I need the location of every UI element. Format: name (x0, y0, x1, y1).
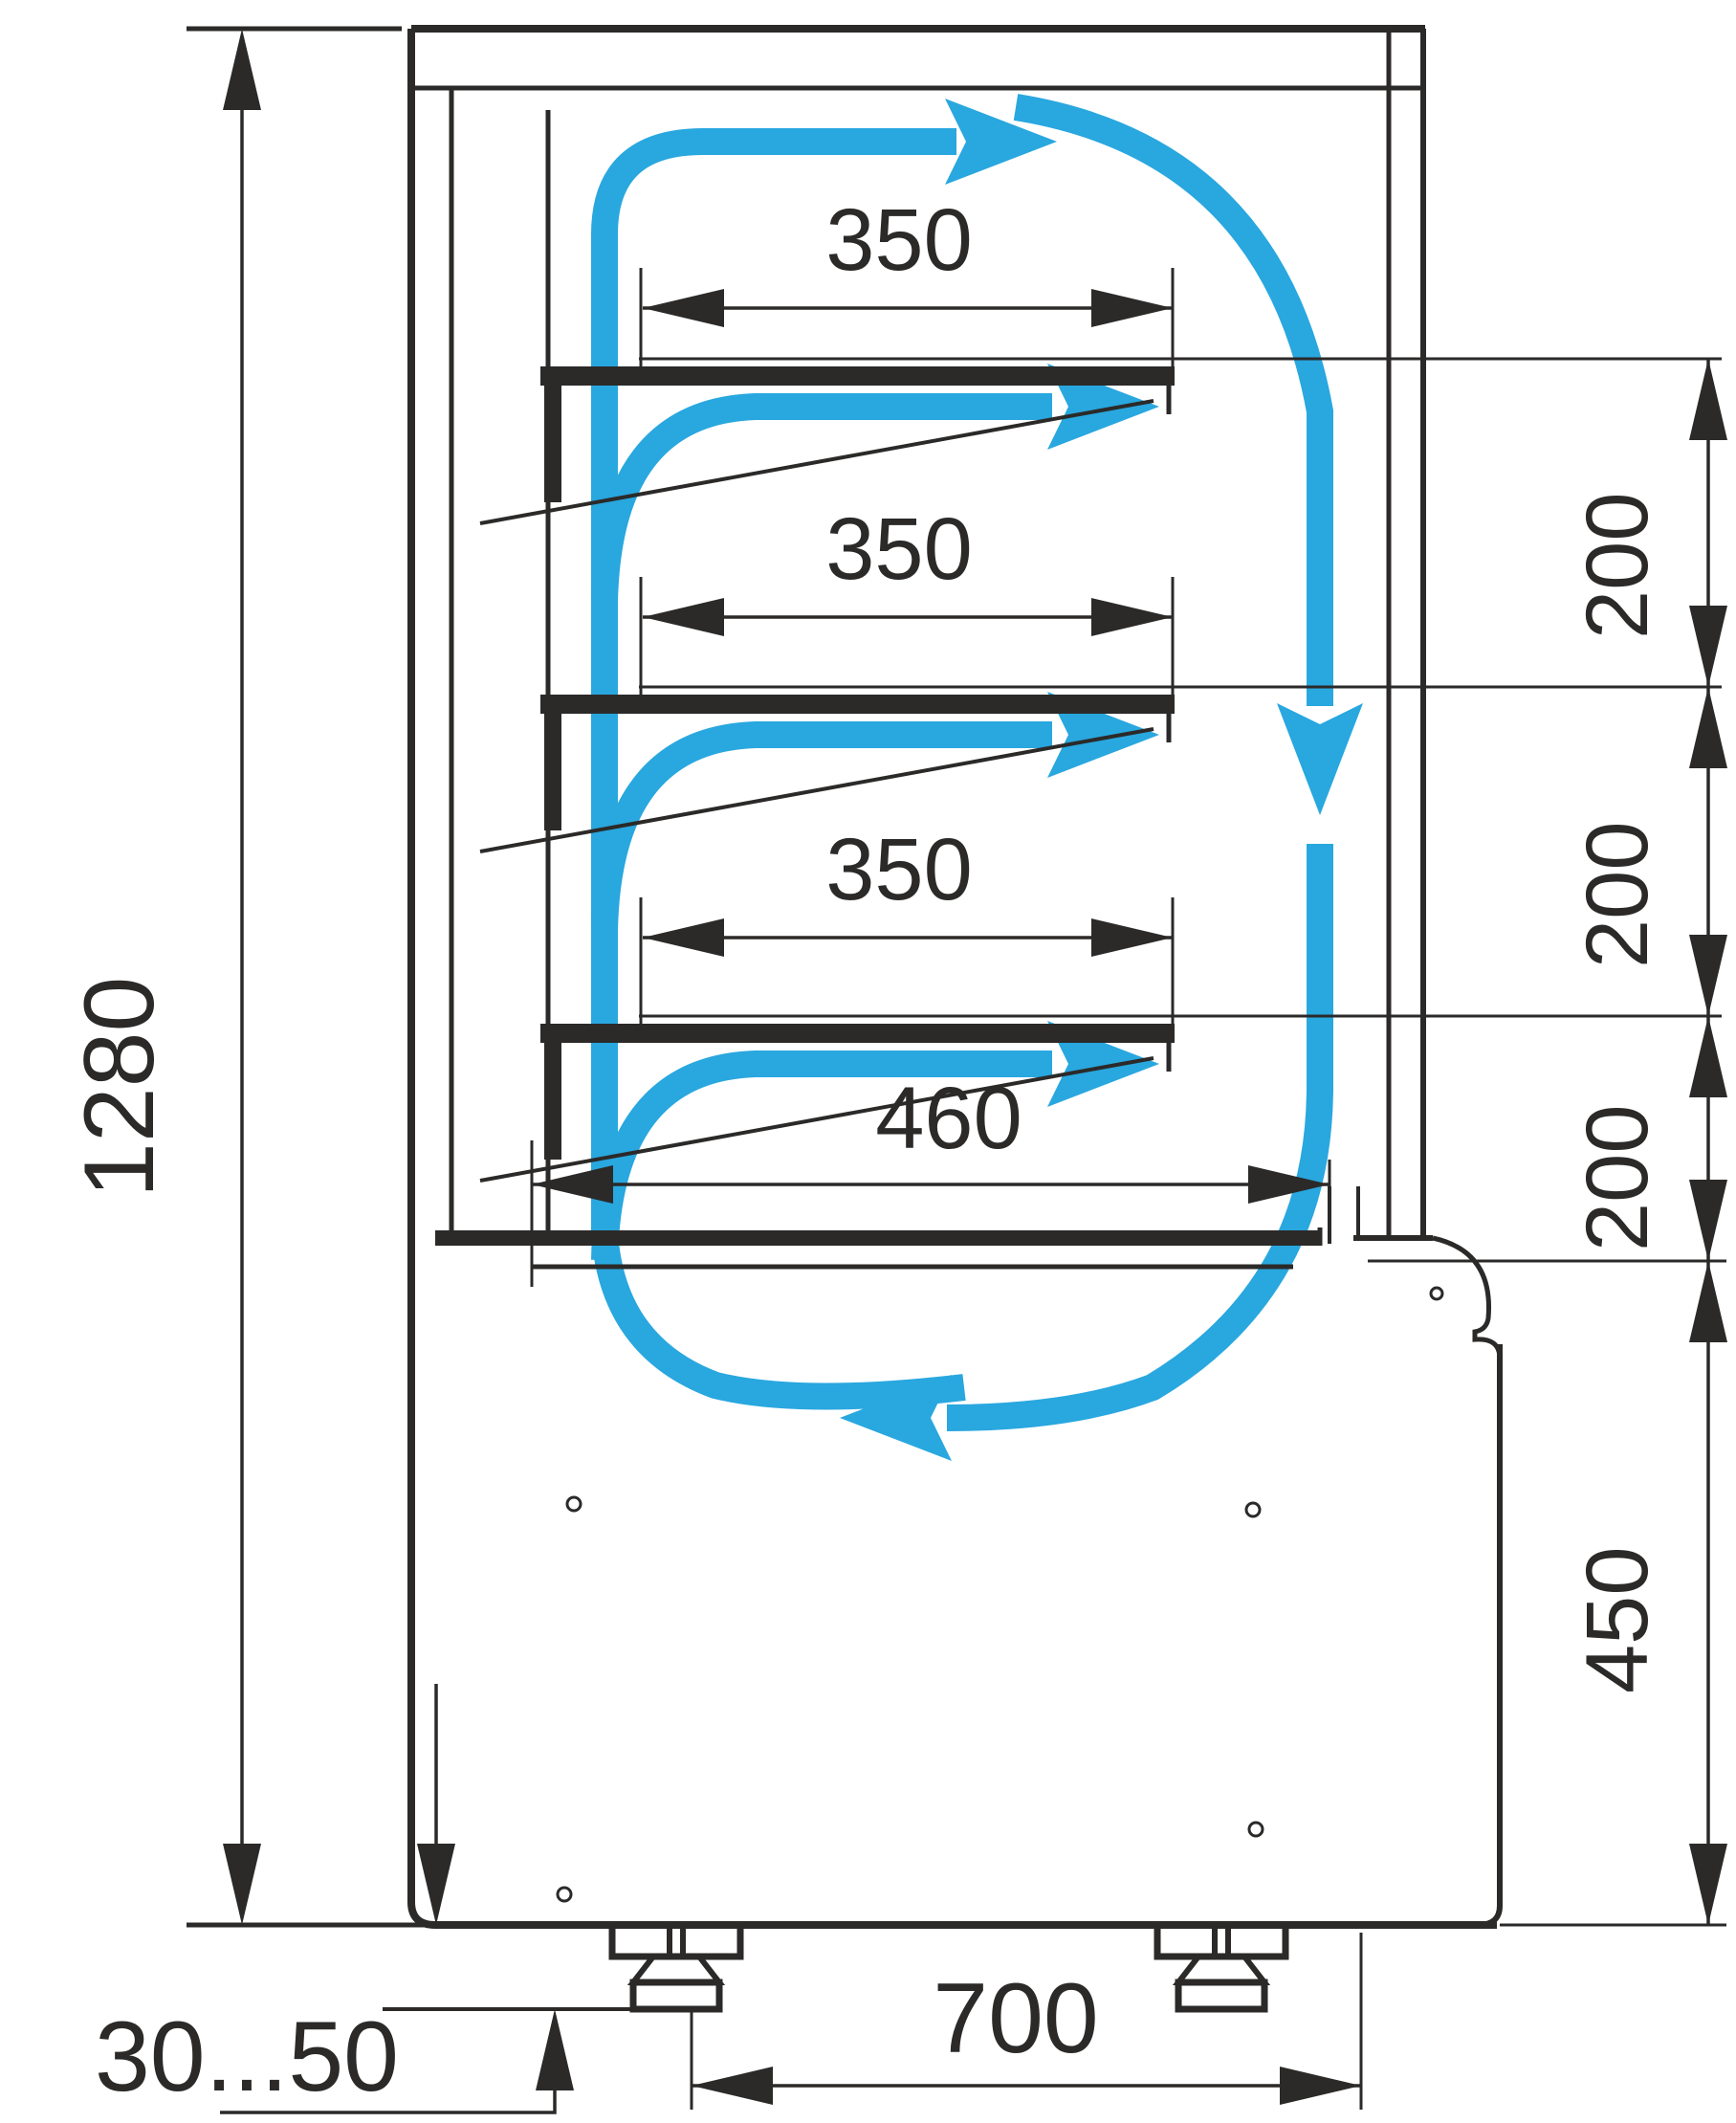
foot-left (612, 1925, 740, 2009)
dim-label: 200 (1569, 1105, 1666, 1252)
dim-label: 1280 (64, 977, 175, 1198)
dim-label: 350 (825, 500, 973, 598)
front-bullnose-profile (1433, 1238, 1500, 1359)
arrow-left-icon (643, 289, 724, 327)
arrow-up-icon (223, 29, 261, 110)
screw-icon (558, 1888, 571, 1901)
screw-icon (1249, 1823, 1263, 1836)
dimensions-group: 1280 350 350 350 (64, 29, 1727, 2112)
airflow-intake-sweep (604, 1232, 964, 1397)
arrow-up-icon (536, 2009, 574, 2090)
dim-label: 700 (933, 1963, 1099, 2074)
dim-label: 30...50 (95, 2001, 399, 2112)
shelf-1-board (540, 366, 1175, 386)
screw-icon (567, 1497, 581, 1511)
shelf-2-bracket (544, 695, 561, 830)
arrow-down-icon (223, 1844, 261, 1925)
arrow-up-icon (1689, 1261, 1727, 1342)
arrow-left-icon (532, 1165, 613, 1204)
arrow-down-icon (1689, 1844, 1727, 1925)
dim-label: 350 (825, 821, 973, 918)
arrow-up-icon (1689, 687, 1727, 768)
dim-shelf-3: 350 (641, 821, 1173, 1035)
shelf-2-board (540, 695, 1175, 714)
arrow-down-icon (1689, 606, 1727, 687)
dim-label: 200 (1569, 493, 1666, 640)
case-left-wall-and-bottom (411, 29, 1497, 1925)
arrow-left-icon (643, 598, 724, 636)
arrow-right-icon (1091, 598, 1173, 636)
display-case-section-diagram: 1280 350 350 350 (0, 0, 1736, 2123)
dim-label: 200 (1569, 822, 1666, 969)
lower-front-face (1478, 1344, 1500, 1925)
arrow-up-icon (1689, 359, 1727, 440)
arrow-right-icon (1091, 918, 1173, 957)
dim-shelf-2: 350 (641, 500, 1173, 706)
arrow-down-icon (417, 1844, 455, 1925)
dim-label: 460 (875, 1070, 1022, 1167)
shelf-3-board (540, 1024, 1175, 1043)
airflow-down-arrow-icon (1277, 703, 1363, 815)
arrow-right-icon (1091, 289, 1173, 327)
arrow-down-icon (1689, 935, 1727, 1016)
arrow-right-icon (1280, 2067, 1361, 2105)
technical-drawing-page: 1280 350 350 350 (0, 0, 1736, 2123)
arrow-up-icon (1689, 1016, 1727, 1097)
deck-counter-band (435, 1230, 1320, 1246)
shelf-1-bracket (544, 366, 561, 502)
dim-total-height: 1280 (64, 29, 430, 1925)
dim-shelf-1: 350 (641, 191, 1173, 378)
arrow-left-icon (643, 918, 724, 957)
screw-icon (1246, 1503, 1260, 1516)
foot-right (1157, 1925, 1286, 2009)
dim-leg-adjust: 30...50 (95, 1684, 574, 2112)
dim-label: 350 (825, 191, 973, 289)
arrow-left-icon (692, 2067, 773, 2105)
dim-label: 450 (1569, 1547, 1666, 1694)
arrow-down-icon (1689, 1180, 1727, 1261)
screw-icon (1431, 1288, 1442, 1299)
shelf-3-bracket (544, 1024, 561, 1160)
case-structure (383, 29, 1722, 2009)
